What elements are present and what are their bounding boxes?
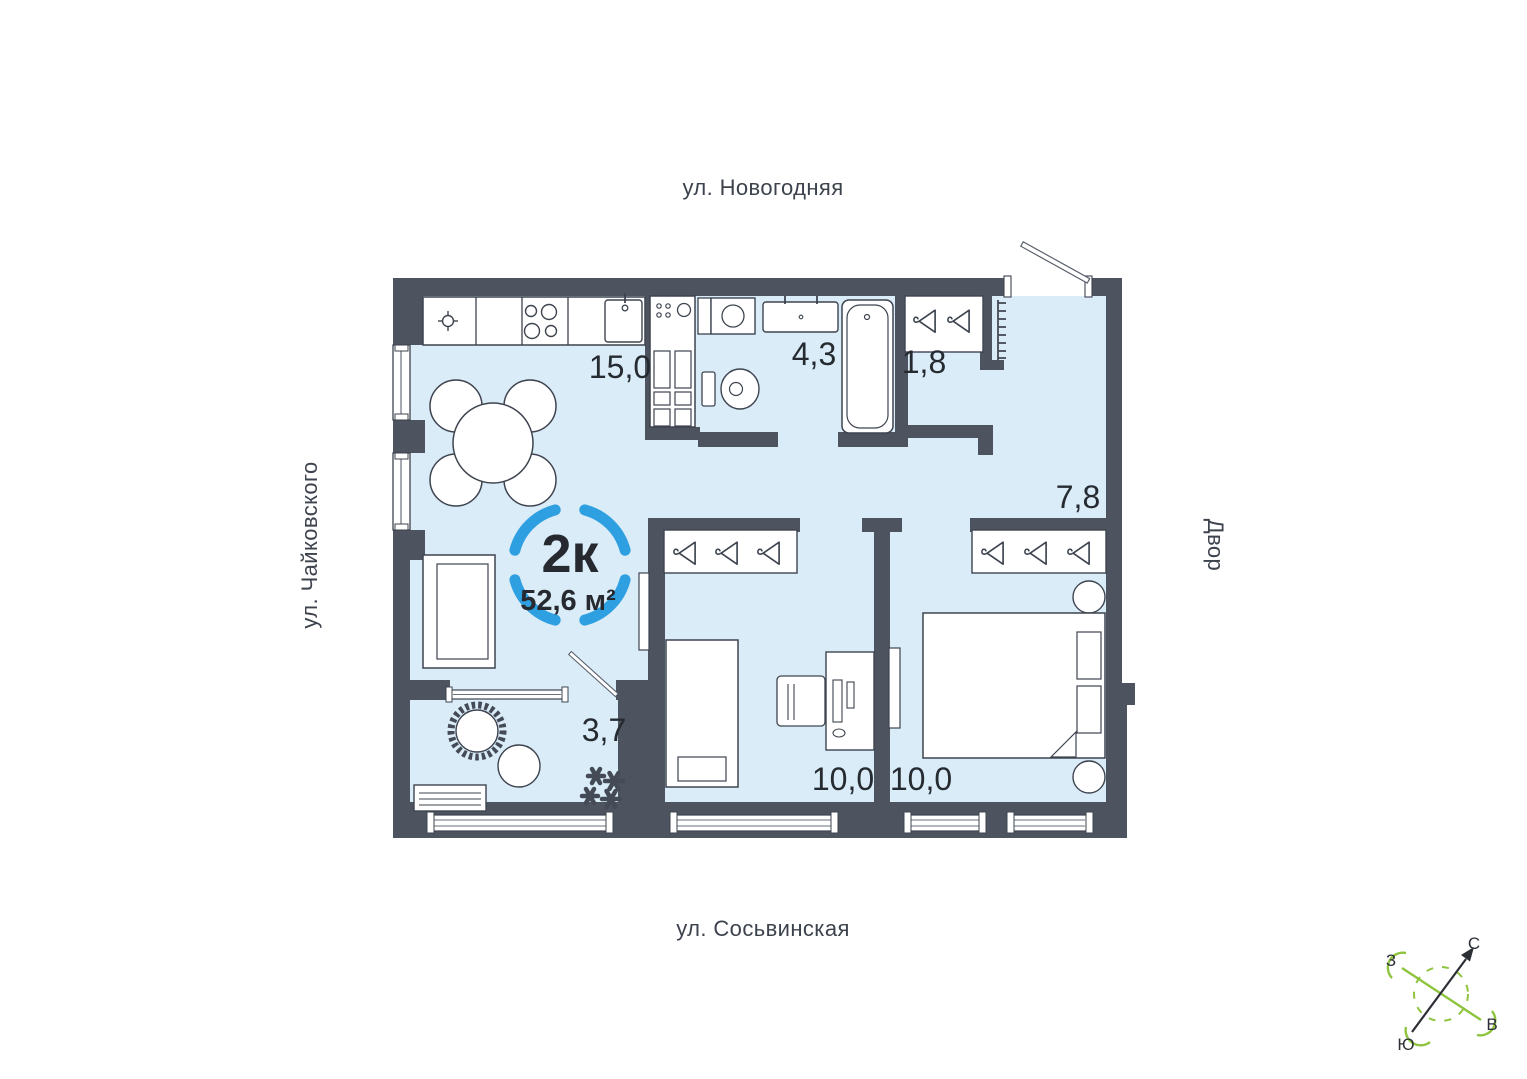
bath-sink [763, 296, 838, 332]
compass-west-label: З [1386, 951, 1396, 970]
room-area-hallway: 7,8 [1056, 479, 1100, 515]
wall-loggia-right [618, 680, 665, 838]
nightstand [1073, 581, 1105, 613]
dining-table [453, 403, 533, 483]
unit-type-label: 2к [541, 524, 599, 584]
compass-north-label: С [1468, 934, 1480, 953]
room-area-loggia: 3,7 [582, 712, 626, 748]
street-label-bottom: ул. Сосьвинская [676, 916, 850, 941]
floor-plan-svg: 2к 52,6 м² 15,0 4,3 1,8 7,8 3,7 10,0 10,… [0, 0, 1527, 1079]
pouf [498, 745, 540, 787]
window-left-1 [393, 345, 410, 420]
room-area-kitchen-living: 15,0 [589, 349, 651, 385]
bedroom1-door-leaf [639, 573, 649, 650]
compass-east-label: В [1486, 1015, 1497, 1034]
window-bedroom2-a [904, 812, 986, 833]
wall-left-top [393, 278, 423, 345]
washing-machine [711, 298, 755, 334]
entrance-door [1004, 242, 1092, 297]
pillow [1077, 632, 1101, 679]
wall-top [393, 278, 1010, 296]
desk [826, 652, 874, 750]
sofa [423, 555, 495, 668]
wall-between-bedrooms [874, 518, 890, 838]
wall-loggia-top-left [393, 680, 450, 700]
compass: С З В Ю [1386, 934, 1498, 1054]
pillow [1077, 686, 1101, 733]
bathtub [842, 300, 893, 433]
single-bed [666, 640, 738, 787]
room-area-bathroom: 4,3 [792, 336, 836, 372]
window-loggia-bottom [427, 812, 613, 833]
nightstand [1073, 761, 1105, 793]
street-label-top: ул. Новогодняя [682, 175, 843, 200]
toilet [702, 369, 759, 409]
yard-label-right: Двор [1203, 519, 1228, 571]
window-bedroom2-b [1007, 812, 1093, 833]
room-area-bedroom-2: 10,0 [890, 761, 952, 797]
wall-closet-cap [980, 360, 1004, 370]
kitchen-sink [605, 293, 642, 342]
desk-chair [777, 676, 825, 726]
double-bed [923, 613, 1105, 758]
entrance-door-leaf [1021, 242, 1090, 283]
wall-left-pier [393, 420, 425, 453]
wall-under-cabinet [650, 427, 700, 440]
bedroom2-door-leaf [889, 648, 900, 728]
window-bedroom1 [670, 812, 838, 833]
wall-loggia-top-right [616, 680, 655, 700]
wall-left-shoulder [393, 530, 425, 560]
room-area-bedroom-1: 10,0 [812, 761, 874, 797]
wall-closet-corner [978, 425, 993, 455]
wall-bath-bottom-left [698, 432, 778, 447]
bath-counter [698, 298, 711, 334]
room-area-closet: 1,8 [902, 344, 946, 380]
unit-area-label: 52,6 м² [520, 585, 616, 617]
floor-plan-page: 2к 52,6 м² 15,0 4,3 1,8 7,8 3,7 10,0 10,… [0, 0, 1527, 1079]
bench [414, 785, 486, 811]
wall-right-upper [1106, 278, 1122, 683]
street-label-left: ул. Чайковского [297, 461, 322, 628]
window-left-2 [393, 453, 410, 530]
compass-north-arrow [1412, 959, 1466, 1032]
compass-south-label: Ю [1397, 1035, 1414, 1054]
kitchen-cabinet-column [650, 296, 695, 427]
